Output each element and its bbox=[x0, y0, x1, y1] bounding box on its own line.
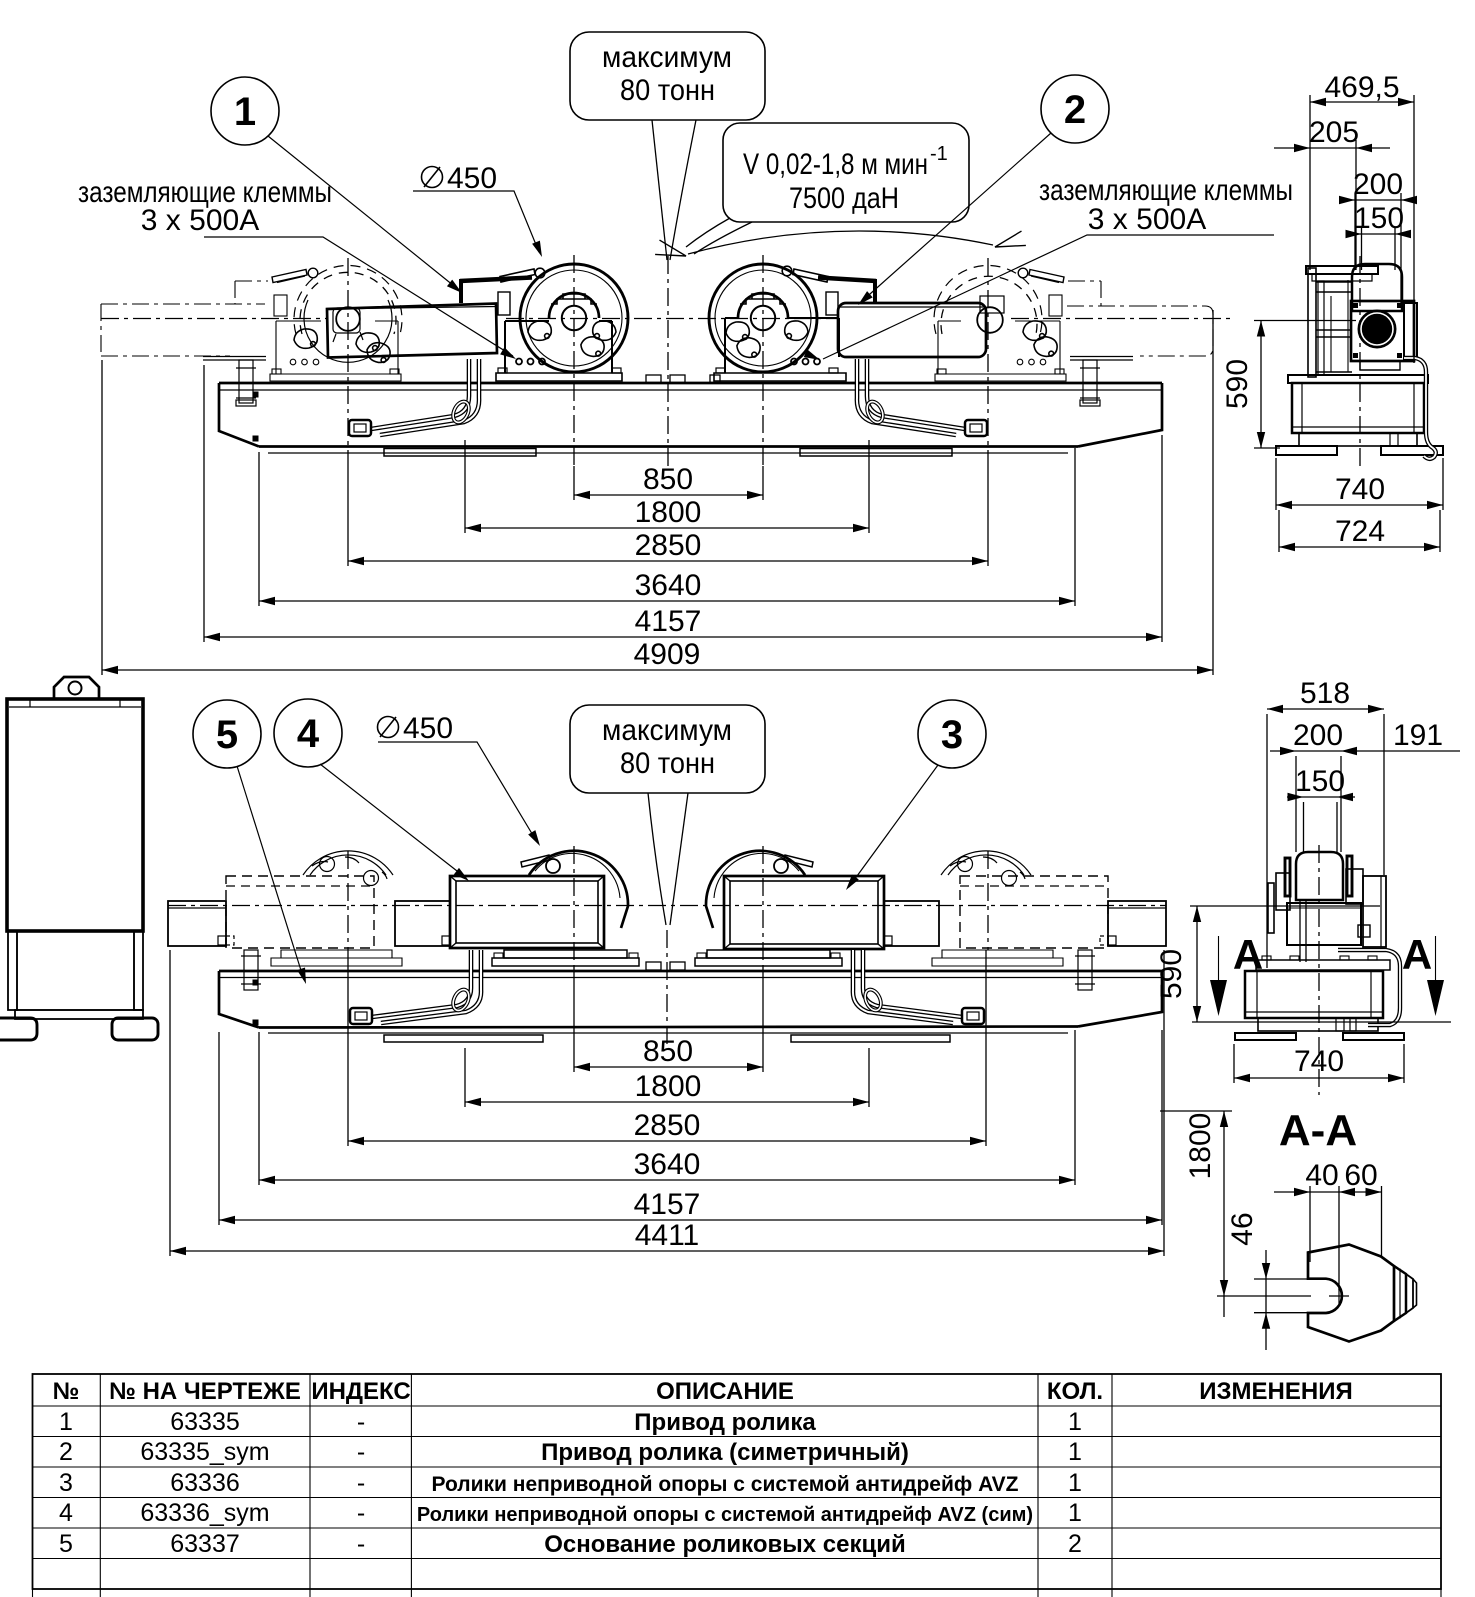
svg-text:КОЛ.: КОЛ. bbox=[1047, 1378, 1103, 1405]
svg-text:63336_sym: 63336_sym bbox=[140, 1499, 269, 1527]
svg-text:Основание роликовых секций: Основание роликовых секций bbox=[544, 1531, 906, 1558]
svg-text:4157: 4157 bbox=[635, 605, 702, 638]
svg-text:850: 850 bbox=[643, 1035, 693, 1068]
svg-text:A: A bbox=[1402, 931, 1432, 978]
svg-text:3 х 500А: 3 х 500А bbox=[1088, 203, 1206, 236]
svg-text:A: A bbox=[1233, 931, 1263, 978]
svg-text:850: 850 bbox=[643, 463, 693, 496]
svg-text:740: 740 bbox=[1335, 473, 1385, 506]
svg-text:518: 518 bbox=[1300, 677, 1350, 710]
svg-text:150: 150 bbox=[1354, 202, 1404, 235]
svg-text:Привод ролика: Привод ролика bbox=[634, 1409, 816, 1436]
svg-text:63335_sym: 63335_sym bbox=[140, 1438, 269, 1466]
svg-text:2850: 2850 bbox=[635, 529, 702, 562]
svg-text:2850: 2850 bbox=[634, 1109, 701, 1142]
svg-text:3640: 3640 bbox=[635, 569, 702, 602]
svg-text:ОПИСАНИЕ: ОПИСАНИЕ bbox=[656, 1378, 794, 1405]
svg-text:-: - bbox=[357, 1469, 365, 1497]
svg-text:1: 1 bbox=[59, 1408, 73, 1436]
svg-text:максимум: максимум bbox=[602, 41, 732, 74]
svg-text:724: 724 bbox=[1335, 515, 1385, 548]
svg-text:2: 2 bbox=[59, 1438, 73, 1466]
svg-text:2: 2 bbox=[1068, 1530, 1082, 1558]
svg-text:ИЗМЕНЕНИЯ: ИЗМЕНЕНИЯ bbox=[1199, 1378, 1352, 1405]
svg-text:740: 740 bbox=[1294, 1045, 1344, 1078]
svg-text:3: 3 bbox=[941, 713, 963, 757]
svg-text:5: 5 bbox=[59, 1530, 73, 1558]
svg-text:469,5: 469,5 bbox=[1324, 71, 1399, 104]
svg-text:200: 200 bbox=[1353, 168, 1403, 201]
svg-text:1: 1 bbox=[1068, 1469, 1082, 1497]
svg-text:63336: 63336 bbox=[170, 1469, 240, 1497]
svg-text:1: 1 bbox=[234, 90, 256, 134]
svg-text:590: 590 bbox=[1221, 359, 1254, 409]
svg-text:4411: 4411 bbox=[635, 1219, 700, 1252]
svg-text:Привод ролика (симетричный): Привод ролика (симетричный) bbox=[541, 1439, 909, 1466]
svg-text:3 х 500А: 3 х 500А bbox=[141, 204, 259, 237]
svg-text:4: 4 bbox=[297, 712, 320, 756]
svg-text:63337: 63337 bbox=[170, 1530, 240, 1558]
svg-text:200: 200 bbox=[1293, 719, 1343, 752]
svg-text:1800: 1800 bbox=[635, 1070, 702, 1103]
svg-text:Ролики неприводной опоры с сис: Ролики неприводной опоры с системой анти… bbox=[431, 1473, 1018, 1496]
svg-text:4: 4 bbox=[59, 1499, 73, 1527]
svg-text:150: 150 bbox=[1295, 765, 1345, 798]
svg-text:Ролики неприводной опоры с сис: Ролики неприводной опоры с системой анти… bbox=[417, 1504, 1033, 1526]
svg-text:7500 даН: 7500 даН bbox=[789, 182, 899, 215]
svg-text:3: 3 bbox=[59, 1469, 73, 1497]
svg-text:5: 5 bbox=[216, 713, 238, 757]
svg-text:ИНДЕКС: ИНДЕКС bbox=[311, 1378, 410, 1405]
svg-text:-: - bbox=[357, 1499, 365, 1527]
svg-text:4157: 4157 bbox=[634, 1188, 701, 1221]
svg-text:1: 1 bbox=[1068, 1408, 1082, 1436]
svg-text:60: 60 bbox=[1344, 1159, 1377, 1192]
svg-text:-: - bbox=[357, 1530, 365, 1558]
svg-text:1800: 1800 bbox=[635, 496, 702, 529]
svg-text:максимум: максимум bbox=[602, 714, 732, 747]
svg-text:205: 205 bbox=[1309, 116, 1359, 149]
svg-text:-: - bbox=[357, 1438, 365, 1466]
svg-text:3640: 3640 bbox=[634, 1148, 701, 1181]
svg-text:1: 1 bbox=[1068, 1499, 1082, 1527]
svg-text:-1: -1 bbox=[930, 143, 948, 165]
svg-text:450: 450 bbox=[403, 712, 453, 745]
svg-text:63335: 63335 bbox=[170, 1408, 240, 1436]
svg-text:450: 450 bbox=[447, 162, 497, 195]
svg-text:A-A: A-A bbox=[1279, 1106, 1357, 1155]
svg-text:№: № bbox=[53, 1378, 80, 1405]
svg-text:№ НА ЧЕРТЕЖЕ: № НА ЧЕРТЕЖЕ bbox=[109, 1378, 301, 1405]
svg-text:1: 1 bbox=[1068, 1438, 1082, 1466]
svg-text:V 0,02-1,8 м мин: V 0,02-1,8 м мин bbox=[743, 148, 928, 181]
svg-text:4909: 4909 bbox=[634, 638, 701, 671]
svg-text:590: 590 bbox=[1155, 949, 1188, 999]
svg-text:191: 191 bbox=[1393, 719, 1443, 752]
svg-text:-: - bbox=[357, 1408, 365, 1436]
svg-text:46: 46 bbox=[1226, 1212, 1259, 1245]
svg-text:1800: 1800 bbox=[1184, 1113, 1217, 1180]
svg-text:80 тонн: 80 тонн bbox=[620, 747, 715, 780]
svg-text:80 тонн: 80 тонн bbox=[620, 74, 715, 107]
svg-text:2: 2 bbox=[1064, 88, 1086, 132]
svg-text:40: 40 bbox=[1305, 1159, 1338, 1192]
